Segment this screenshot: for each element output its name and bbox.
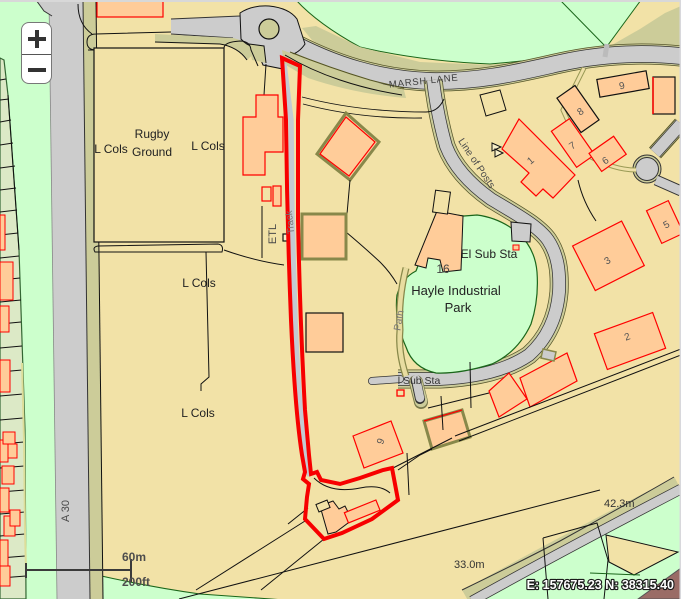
svg-text:Park: Park <box>445 300 472 315</box>
svg-text:l Sub Sta: l Sub Sta <box>398 375 441 387</box>
svg-text:33.0m: 33.0m <box>454 559 485 571</box>
svg-text:Rugby: Rugby <box>135 127 170 141</box>
svg-text:L Cols: L Cols <box>94 142 128 156</box>
svg-text:E: 157675.23 N: 38315.40: E: 157675.23 N: 38315.40 <box>527 578 674 592</box>
svg-text:60m: 60m <box>122 550 146 564</box>
svg-text:16: 16 <box>436 262 450 276</box>
svg-text:Ground: Ground <box>132 145 172 159</box>
svg-text:Hayle Industrial: Hayle Industrial <box>411 283 501 298</box>
svg-text:L Cols: L Cols <box>182 276 216 290</box>
svg-text:42.3m: 42.3m <box>604 498 635 510</box>
svg-text:L Cols: L Cols <box>181 406 215 420</box>
svg-text:200ft: 200ft <box>122 575 150 589</box>
svg-text:El Sub Sta: El Sub Sta <box>461 247 518 261</box>
svg-text:L Cols: L Cols <box>191 139 225 153</box>
svg-text:A 30: A 30 <box>60 500 72 522</box>
svg-text:ETL: ETL <box>267 224 279 244</box>
